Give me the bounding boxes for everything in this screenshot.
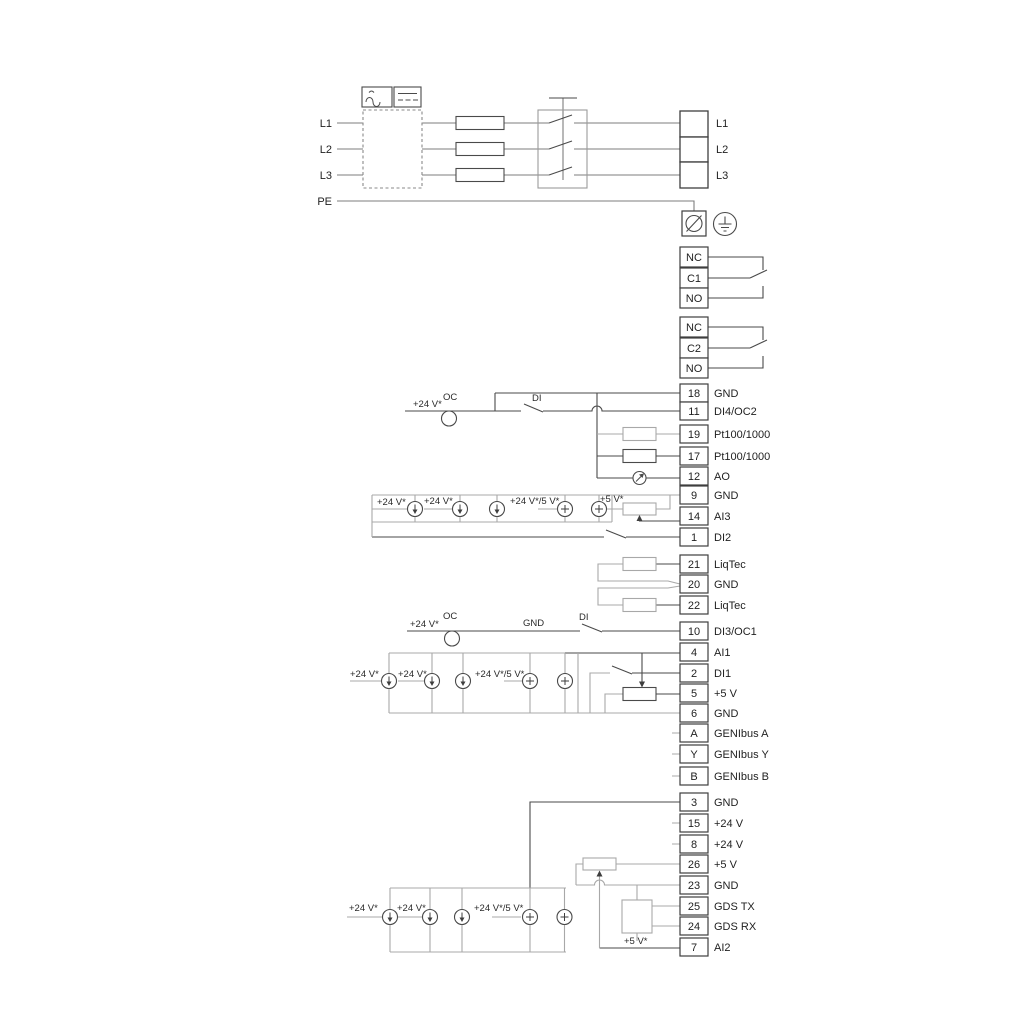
label-plus24v-5v: +24 V*/5 V* <box>475 669 525 680</box>
io-block-2: 10 DI3/OC1 4 AI1 2 DI1 5 +5 V 6 GND A GE… <box>680 622 769 785</box>
io-block-1: 18 GND 11 DI4/OC2 19 Pt100/1000 17 Pt100… <box>680 384 770 546</box>
terminal-label: AI3 <box>714 511 731 523</box>
terminal-cell <box>680 111 708 137</box>
fuse-l2 <box>456 143 504 156</box>
terminal-label: DI3/OC1 <box>714 626 757 638</box>
relay-terminal-no: NO <box>686 363 703 375</box>
terminal-cell <box>680 137 708 162</box>
terminal-number: 8 <box>691 839 697 851</box>
liqtec-resistor-1 <box>623 558 656 571</box>
terminal-number: 3 <box>691 797 697 809</box>
terminal-label: GND <box>714 880 739 892</box>
terminal-label: GND <box>714 708 739 720</box>
terminal-number: 9 <box>691 490 697 502</box>
label-plus24v-5v: +24 V*/5 V* <box>510 496 560 507</box>
label-gnd: GND <box>523 618 544 629</box>
mains-input-labels: L1 L2 L3 PE <box>317 118 332 208</box>
terminal-label: GENIbus B <box>714 771 769 783</box>
ac-waveform-icon <box>362 87 392 107</box>
terminal-number: 18 <box>688 388 700 400</box>
liqtec-resistor-2 <box>623 599 656 612</box>
terminal-number: 15 <box>688 818 700 830</box>
terminal-label: L2 <box>716 144 728 156</box>
relay-2-block: NC C2 NO <box>680 317 708 378</box>
label-di: DI <box>532 393 542 404</box>
terminal-number: 24 <box>688 921 700 933</box>
mains-output-block: L1 L2 L3 <box>680 111 728 188</box>
terminal-number: 10 <box>688 626 700 638</box>
terminal-number: 2 <box>691 668 697 680</box>
terminal-number: 25 <box>688 901 700 913</box>
earth-glyph <box>719 217 732 232</box>
terminal-label: GND <box>714 579 739 591</box>
label-plus5v: +5 V* <box>624 936 648 947</box>
pt100-resistor-1 <box>623 428 656 441</box>
terminal-number: 5 <box>691 688 697 700</box>
label-plus24v: +24 V* <box>410 619 439 630</box>
terminal-label: GDS TX <box>714 901 755 913</box>
terminal-label: GND <box>714 388 739 400</box>
terminal-label: DI4/OC2 <box>714 406 757 418</box>
label-plus24v-5v: +24 V*/5 V* <box>474 903 524 914</box>
gds-sensor-box <box>622 900 652 933</box>
terminal-label: AI1 <box>714 647 731 659</box>
line-label-pe: PE <box>317 196 332 208</box>
label-plus24v: +24 V* <box>397 903 426 914</box>
relay-terminal-c2: C2 <box>687 343 701 355</box>
current-source-arrow-tips <box>387 510 500 923</box>
label-plus24v: +24 V* <box>350 669 379 680</box>
terminal-label: L1 <box>716 118 728 130</box>
liqtec-block: 21 LiqTec 20 GND 22 LiqTec <box>680 555 746 614</box>
terminal-label: +5 V <box>714 688 738 700</box>
relay-terminal-no: NO <box>686 293 703 305</box>
relay-terminal-c1: C1 <box>687 273 701 285</box>
terminal-number: 26 <box>688 859 700 871</box>
terminal-number: 17 <box>688 451 700 463</box>
label-plus24v: +24 V* <box>424 496 453 507</box>
label-oc: OC <box>443 611 457 622</box>
label-di: DI <box>579 612 589 623</box>
terminal-label: AI2 <box>714 942 731 954</box>
terminal-label: L3 <box>716 170 728 182</box>
terminal-number: 11 <box>688 406 699 418</box>
terminal-number: 12 <box>688 471 700 483</box>
potentiometer-ai3 <box>623 503 656 515</box>
terminal-number: 1 <box>691 532 697 544</box>
fuse-l3 <box>456 169 504 182</box>
terminal-label: LiqTec <box>714 600 746 612</box>
relay-terminal-nc: NC <box>686 322 702 334</box>
line-label-l2: L2 <box>320 144 332 156</box>
terminal-number: 4 <box>691 647 697 659</box>
current-source-arrow-stems <box>389 505 497 918</box>
potentiometer-ai1 <box>623 688 656 701</box>
terminal-number: 14 <box>688 511 700 523</box>
terminal-number: B <box>690 771 697 783</box>
wiring-diagram-canvas: L1 L2 L3 L1 L2 L3 PE NC C1 NO NC C2 NO 1… <box>0 0 1024 1024</box>
terminal-label: +5 V <box>714 859 738 871</box>
terminal-label: AO <box>714 471 730 483</box>
terminal-label: GENIbus Y <box>714 749 769 761</box>
open-collector-circle-oc2 <box>442 411 457 426</box>
terminal-label: DI2 <box>714 532 731 544</box>
terminal-number: 23 <box>688 880 700 892</box>
terminal-cell <box>680 162 708 188</box>
terminal-label: Pt100/1000 <box>714 451 770 463</box>
terminal-label: GND <box>714 490 739 502</box>
terminal-number: 19 <box>688 429 700 441</box>
wiring-diagram: L1 L2 L3 L1 L2 L3 PE NC C1 NO NC C2 NO 1… <box>0 0 1024 1024</box>
relay-1-block: NC C1 NO <box>680 247 708 308</box>
terminal-number: Y <box>690 749 698 761</box>
terminal-label: DI1 <box>714 668 731 680</box>
terminal-label: GND <box>714 797 739 809</box>
terminal-number: 20 <box>688 579 700 591</box>
label-plus24v: +24 V* <box>377 497 406 508</box>
terminal-label: +24 V <box>714 839 744 851</box>
line-label-l1: L1 <box>320 118 332 130</box>
power-lines <box>337 98 694 211</box>
terminal-number: 21 <box>688 559 700 571</box>
dc-symbol-icon <box>394 87 421 107</box>
terminal-label: LiqTec <box>714 559 746 571</box>
io-block-3: 3 GND 15 +24 V 8 +24 V 26 +5 V 23 GND 25… <box>680 793 757 956</box>
pt100-resistor-2 <box>623 450 656 463</box>
terminal-label: +24 V <box>714 818 744 830</box>
terminal-label: GDS RX <box>714 921 757 933</box>
fuse-l1 <box>456 117 504 130</box>
label-plus24v: +24 V* <box>398 669 427 680</box>
power-wiring <box>337 98 694 211</box>
terminal-number: A <box>690 728 698 740</box>
label-plus24v: +24 V* <box>413 399 442 410</box>
label-plus5v: +5 V* <box>600 494 624 505</box>
converter-dashed-box <box>363 110 422 188</box>
open-collector-circle-oc1 <box>445 631 460 646</box>
potentiometer-ai2 <box>583 858 616 870</box>
terminal-label: Pt100/1000 <box>714 429 770 441</box>
terminal-number: 6 <box>691 708 697 720</box>
label-oc: OC <box>443 392 457 403</box>
terminal-number: 7 <box>691 942 697 954</box>
relay-terminal-nc: NC <box>686 252 702 264</box>
line-label-l3: L3 <box>320 170 332 182</box>
terminal-label: GENIbus A <box>714 728 769 740</box>
terminal-number: 22 <box>688 600 700 612</box>
label-plus24v: +24 V* <box>349 903 378 914</box>
